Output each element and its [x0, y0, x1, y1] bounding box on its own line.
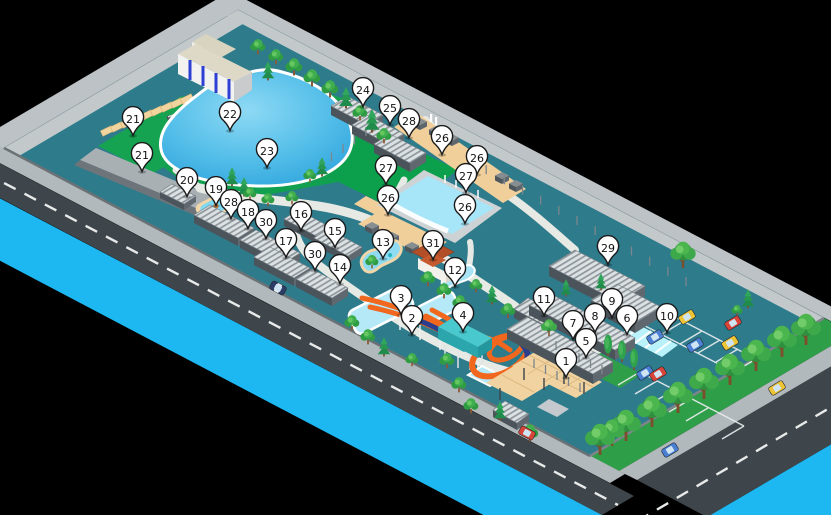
pin-number: 21	[126, 113, 140, 126]
pin-number: 30	[308, 248, 322, 261]
pin-number: 2	[409, 312, 416, 325]
pin-number: 4	[460, 309, 467, 322]
pin-number: 30	[259, 216, 273, 229]
pin-number: 14	[333, 261, 347, 274]
pin-number: 9	[609, 295, 616, 308]
flag-marks	[430, 114, 432, 122]
pin-number: 26	[435, 132, 449, 145]
pin-number: 22	[223, 108, 237, 121]
pin-number: 28	[402, 115, 416, 128]
pin-number: 3	[398, 292, 405, 305]
park-map-canvas: 2425222128262321262727201926282618163015…	[0, 0, 831, 515]
pin-number: 5	[583, 335, 590, 348]
pin-number: 26	[470, 152, 484, 165]
pin-number: 1	[563, 355, 570, 368]
pin-number: 13	[376, 236, 390, 249]
pin-number: 25	[383, 102, 397, 115]
pin-number: 18	[241, 206, 255, 219]
pin-number: 6	[624, 312, 631, 325]
pin-number: 19	[209, 183, 223, 196]
pin-number: 7	[570, 317, 577, 330]
pin-number: 8	[592, 310, 599, 323]
pin-number: 24	[356, 84, 370, 97]
pin-number: 16	[294, 208, 308, 221]
water-park-map: 2425222128262321262727201926282618163015…	[0, 0, 831, 515]
pin-number: 11	[537, 293, 551, 306]
pin-number: 28	[224, 196, 238, 209]
pin-number: 21	[135, 149, 149, 162]
pin-number: 23	[260, 145, 274, 158]
pin-number: 26	[381, 192, 395, 205]
pin-number: 27	[379, 162, 393, 175]
pin-number: 20	[180, 174, 194, 187]
pin-number: 10	[660, 310, 674, 323]
pin-number: 15	[328, 225, 342, 238]
flag-marks	[435, 117, 437, 125]
pin-number: 26	[458, 201, 472, 214]
pin-number: 27	[459, 170, 473, 183]
pin-number: 31	[426, 237, 440, 250]
pin-number: 12	[448, 264, 462, 277]
pin-number: 29	[601, 242, 615, 255]
pin-number: 17	[279, 235, 293, 248]
